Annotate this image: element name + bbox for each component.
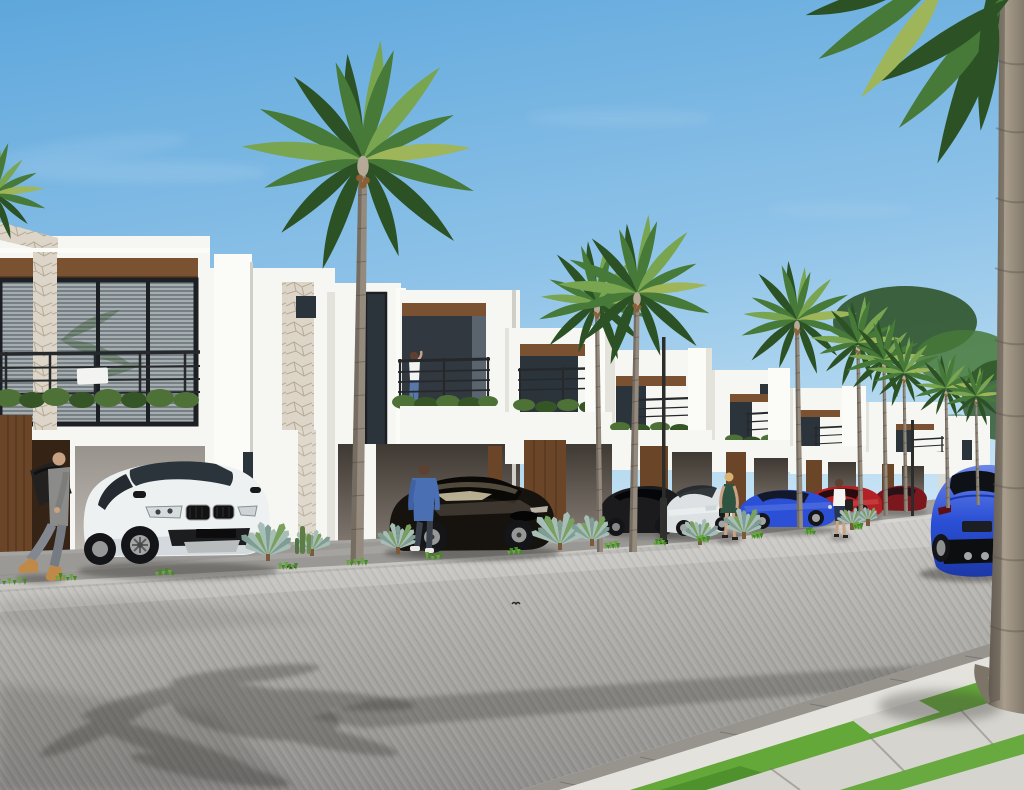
towel-on-rail: [77, 367, 109, 384]
small-window: [296, 296, 316, 318]
shoe: [722, 535, 728, 538]
sneaker: [410, 546, 420, 551]
bmw-mirror: [250, 487, 261, 493]
porsche-plate-recess: [962, 521, 992, 532]
shoe: [732, 537, 738, 540]
bmw-headlight: [146, 506, 182, 518]
bmw-mirror: [133, 491, 146, 498]
bmw-headlight: [238, 506, 257, 516]
lamp-post: [911, 420, 914, 516]
house-2-tall-window: [366, 293, 386, 463]
bmw-license-plate: [196, 529, 236, 538]
house-2-balcony: [392, 303, 498, 411]
architectural-render: [0, 0, 1024, 790]
handbag: [845, 499, 853, 511]
